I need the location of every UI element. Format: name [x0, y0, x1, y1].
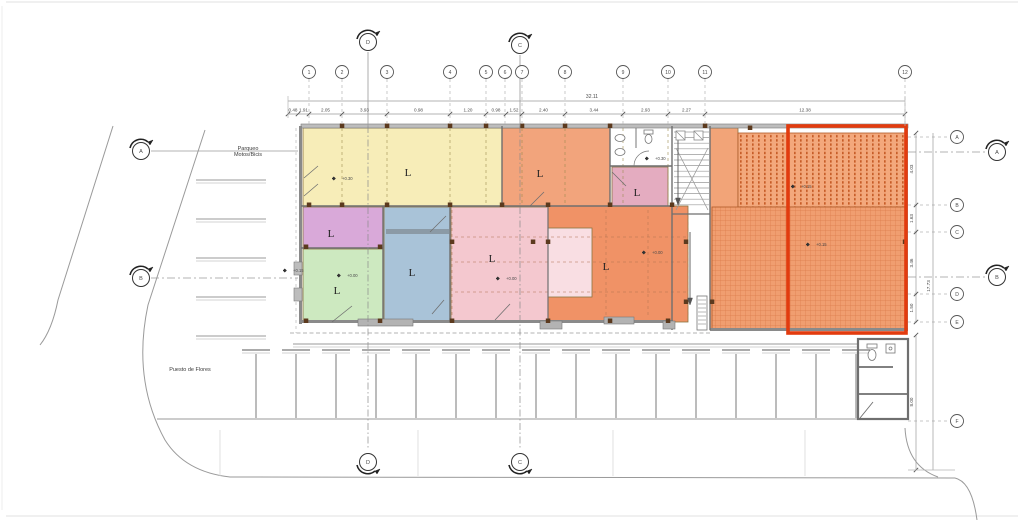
dim-label-top: 12.38	[799, 108, 811, 113]
elevation-text: +0.15	[801, 184, 812, 189]
section-marker-left-A-arrowhead	[148, 140, 153, 145]
column	[304, 319, 309, 324]
section-marker-top-C-arrowhead	[527, 34, 532, 39]
section-marker-bottom-C-label: C	[518, 460, 522, 466]
plan-svg: 123456789101112ABCDEFDCDCABAB32.110.481.…	[0, 0, 1024, 520]
column	[484, 124, 489, 129]
grid-bubble-label: 10	[665, 70, 671, 76]
road-outer-curb	[40, 126, 113, 345]
label-puesto-de-flores: Puesto de Flores	[150, 367, 230, 373]
room-orange-top-label: L	[537, 168, 544, 180]
label-parqueo-line2: Motos/Bicis	[212, 152, 284, 158]
column	[340, 203, 345, 208]
column	[304, 245, 309, 250]
section-marker-top-D-label: D	[366, 40, 370, 46]
column	[450, 240, 455, 245]
room-orange-top	[502, 128, 610, 206]
section-marker-left-B-label: B	[139, 276, 143, 282]
room-yellow-label: L	[405, 167, 412, 179]
column	[710, 300, 715, 305]
column	[546, 319, 551, 324]
terrace-hatch-lower	[712, 207, 906, 330]
column	[448, 124, 453, 129]
road-corner-right	[955, 478, 977, 520]
threshold	[358, 319, 413, 326]
dim-label-right: 1.50	[909, 303, 914, 312]
toilet-tank	[867, 344, 877, 348]
column	[608, 124, 613, 129]
elevation-text: +0.15	[816, 242, 827, 247]
dim-label-top: 1.91	[299, 108, 308, 113]
column	[378, 319, 383, 324]
room-green-label: L	[334, 285, 341, 297]
wall-bottom-right	[710, 328, 908, 331]
room-pink-small-label: L	[634, 187, 641, 199]
column	[307, 203, 312, 208]
column	[500, 203, 505, 208]
room-blue-label: L	[409, 267, 416, 279]
column	[546, 240, 551, 245]
section-marker-right-A-arrowhead	[1004, 141, 1009, 146]
section-marker-bottom-D-arrowhead	[375, 469, 380, 474]
grid-bubble-label: D	[955, 292, 959, 298]
dim-label-top: 0.98	[492, 108, 501, 113]
toilet-icon	[645, 135, 652, 144]
section-marker-left-A-label: A	[139, 149, 143, 155]
threshold	[540, 321, 562, 329]
column	[563, 124, 568, 129]
dim-label-annex: 8.00	[909, 397, 914, 406]
annex-walls	[858, 339, 908, 419]
grid-bubble-label: 11	[702, 70, 707, 76]
column	[670, 203, 675, 208]
column	[666, 319, 671, 324]
dim-label-top: 0.48	[289, 108, 298, 113]
grid-bubble-label: 4	[449, 70, 452, 76]
elevation-text: +0.30	[655, 156, 666, 161]
room-purple-label: L	[328, 228, 335, 240]
column	[378, 245, 383, 250]
column	[450, 319, 455, 324]
grid-bubble-label: 2	[341, 70, 344, 76]
section-marker-bottom-D-label: D	[366, 460, 370, 466]
column	[546, 203, 551, 208]
elevation-text: +0.30	[342, 176, 353, 181]
grid-bubble-label: 9	[622, 70, 625, 76]
column	[531, 240, 536, 245]
sink-icon	[615, 135, 625, 142]
elevation-diamond	[645, 157, 649, 161]
section-marker-top-D-arrowhead	[375, 31, 380, 36]
dim-label-top: 2.40	[539, 108, 548, 113]
dim-label-top: 0.98	[414, 108, 423, 113]
corridor-post	[697, 296, 707, 330]
grid-bubble-label: 6	[504, 70, 507, 76]
column	[684, 240, 689, 245]
annex-door-swing	[860, 402, 873, 418]
grid-bubble-label: 3	[386, 70, 389, 76]
column	[608, 319, 613, 324]
section-marker-left-B-arrowhead	[148, 267, 153, 272]
column	[748, 126, 753, 131]
dim-label-right: 3.46	[909, 258, 914, 267]
elevation-text: +0.00	[347, 273, 358, 278]
urinal-icon	[886, 344, 895, 353]
stair-arrow-head	[676, 198, 681, 205]
room-purple	[303, 207, 383, 248]
column	[608, 203, 613, 208]
grid-bubble-label: 1	[308, 70, 311, 76]
elevation-text: +0.15	[293, 268, 304, 273]
dim-label-top: 2.27	[682, 108, 691, 113]
grid-bubble-label: 7	[521, 70, 524, 76]
dim-overall-right: 17.73	[926, 280, 931, 292]
column	[448, 203, 453, 208]
grid-bubble-label: C	[955, 230, 959, 236]
elevation-diamond	[283, 269, 287, 273]
dim-label-top: 1.20	[464, 108, 473, 113]
column	[340, 124, 345, 129]
section-marker-right-B-arrowhead	[1004, 266, 1009, 271]
elevation-text: +0.00	[506, 276, 517, 281]
floor-plan: 123456789101112ABCDEFDCDCABAB32.110.481.…	[0, 0, 1024, 520]
dim-label-top: 2.93	[641, 108, 650, 113]
door-jamb	[294, 288, 302, 301]
toilet-tank	[644, 130, 653, 134]
column	[385, 124, 390, 129]
dim-overall-top: 32.11	[586, 94, 598, 100]
grid-bubble-label: 5	[485, 70, 488, 76]
sink-icon	[615, 149, 625, 156]
room-yellow	[303, 128, 502, 206]
room-green	[303, 249, 383, 322]
dim-label-top: 2.05	[321, 108, 330, 113]
room-pink-label: L	[489, 253, 496, 265]
section-marker-bottom-C-arrowhead	[527, 469, 532, 474]
column	[520, 124, 525, 129]
toilet-icon	[868, 350, 876, 361]
column	[684, 300, 689, 305]
blue-room-counter	[386, 229, 449, 234]
dim-label-right: 1.63	[909, 214, 914, 223]
grid-bubble-label: 8	[564, 70, 567, 76]
grid-bubble-label: 12	[902, 70, 908, 76]
section-marker-top-C-label: C	[518, 43, 522, 49]
grid-bubble-label: F	[955, 419, 958, 425]
column	[703, 124, 708, 129]
dim-label-top: 3.44	[590, 108, 599, 113]
section-marker-right-A-label: A	[995, 150, 999, 156]
dim-label-right: 4.03	[909, 164, 914, 173]
room-pink-inner	[548, 228, 592, 297]
dim-label-top: 3.93	[360, 108, 369, 113]
label-parqueo-motos: Parqueo Motos/Bicis	[212, 146, 284, 158]
column	[385, 203, 390, 208]
terrace-hatch-upper	[738, 133, 906, 207]
dim-label-top: 1.52	[510, 108, 519, 113]
section-marker-right-B-label: B	[995, 275, 999, 281]
elevation-text: +0.00	[652, 250, 663, 255]
room-orange-big-label: L	[603, 261, 610, 273]
room-pink	[451, 207, 548, 321]
